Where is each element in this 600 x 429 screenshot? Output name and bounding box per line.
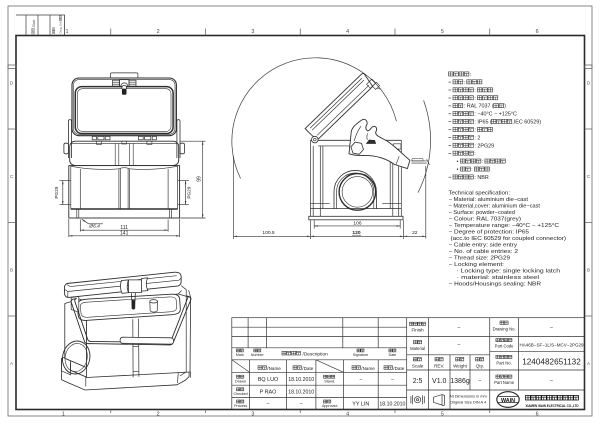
svg-text:: IP65 (: : IP65 ( [474, 120, 492, 126]
svg-text:: RAL 7037 (: : RAL 7037 ( [464, 104, 494, 110]
svg-text:PG29: PG29 [187, 186, 192, 198]
svg-text:−: − [457, 342, 460, 348]
svg-text:/Date: /Date [302, 366, 313, 371]
svg-text:/Date: /Date [32, 19, 36, 27]
svg-text:All Dimensions in mm: All Dimensions in mm [449, 394, 486, 399]
svg-text:2: 2 [157, 412, 160, 418]
svg-text:Weight: Weight [453, 363, 467, 368]
svg-text:−: − [550, 325, 553, 331]
svg-text:− Thread size: 2PG29: − Thread size: 2PG29 [449, 256, 511, 262]
svg-text:− Material: aluminium die−c: − Material: aluminium die−cast [449, 197, 529, 203]
svg-text:BQ LUO: BQ LUO [258, 377, 278, 383]
svg-text:Dwg. Dd: Dwg. Dd [59, 22, 63, 34]
svg-text:3: 3 [251, 412, 254, 418]
svg-text:106: 106 [353, 220, 361, 226]
svg-text:Number: Number [251, 353, 265, 357]
svg-text:−: − [457, 325, 460, 331]
svg-text::: : [474, 127, 475, 133]
svg-text:18.10.2010: 18.10.2010 [288, 377, 314, 383]
svg-text:2: 2 [157, 29, 160, 35]
svg-text:− Hoods/Housings sealing: N: − Hoods/Housings sealing: NBR [449, 282, 542, 288]
svg-text:Signature: Signature [353, 353, 368, 357]
svg-text:1: 1 [62, 412, 65, 418]
svg-text:4: 4 [346, 29, 349, 35]
svg-text:− Temperature range: −40°C: − Temperature range: −40°C − +125°C [449, 223, 560, 229]
svg-text::: : [474, 96, 475, 102]
svg-text:5: 5 [441, 412, 444, 418]
svg-text:Finish: Finish [411, 328, 424, 333]
svg-text:Part Code: Part Code [495, 344, 515, 349]
svg-text:2:5: 2:5 [413, 378, 423, 385]
svg-text::: : [482, 159, 483, 165]
svg-text:6: 6 [536, 29, 539, 35]
svg-text::: : [470, 72, 471, 78]
svg-text:−: − [300, 402, 303, 408]
svg-text:XIAMEN WAIN ELECTRICAL CO.,LTD: XIAMEN WAIN ELECTRICAL CO.,LTD [526, 404, 579, 408]
svg-text:18.10.2010: 18.10.2010 [379, 402, 405, 408]
svg-text:YY LIN: YY LIN [352, 402, 369, 408]
svg-text:WAIN: WAIN [501, 398, 515, 404]
svg-text::: : [464, 80, 465, 86]
svg-text:: NBR: : NBR [474, 175, 488, 181]
svg-text:Stand.: Stand. [324, 379, 335, 383]
svg-text:· Locking type: single loc: · Locking type: single locking latch [457, 269, 561, 275]
svg-text:PG29: PG29 [54, 186, 59, 198]
svg-text:B: B [10, 267, 13, 272]
svg-text:1240482651132: 1240482651132 [522, 357, 581, 366]
svg-text:· material: stainless steel: · material: stainless steel [457, 275, 540, 281]
svg-text:Drawing No.: Drawing No. [493, 327, 516, 332]
svg-text:Approved: Approved [322, 404, 337, 408]
svg-text:6: 6 [536, 412, 539, 418]
svg-text:): ) [504, 104, 506, 110]
svg-text:−: − [359, 377, 362, 383]
svg-text:Process: Process [234, 404, 247, 408]
svg-text:−: − [550, 379, 553, 385]
svg-text:Technical specification:: Technical specification: [449, 191, 511, 197]
svg-text:P RAO: P RAO [260, 389, 277, 395]
svg-text:− Cable entry: side entry: − Cable entry: side entry [449, 243, 518, 249]
svg-text:: 2PG29: : 2PG29 [474, 143, 494, 149]
svg-text:/Description: /Description [303, 352, 329, 358]
svg-text:Material: Material [410, 346, 425, 351]
svg-text:REV.: REV. [434, 363, 444, 368]
svg-text:Drawn: Drawn [235, 379, 246, 383]
svg-text:Date: Date [389, 353, 397, 357]
svg-text:,IEC 60529): ,IEC 60529) [512, 120, 541, 126]
svg-text::: : [474, 88, 475, 94]
svg-text:− Surface: powder−coated: − Surface: powder−coated [449, 210, 516, 216]
svg-text:22: 22 [412, 230, 418, 236]
svg-text:B: B [587, 267, 590, 272]
svg-text:Part No.: Part No. [496, 360, 511, 365]
svg-text:Ø6.4: Ø6.4 [88, 223, 100, 229]
svg-text:141: 141 [120, 230, 129, 236]
svg-text::: : [471, 167, 472, 173]
svg-text:100.5: 100.5 [262, 230, 275, 236]
svg-text:V1.0: V1.0 [432, 378, 447, 385]
svg-text:− Locking element:: − Locking element: [449, 262, 505, 268]
svg-text:4: 4 [346, 412, 349, 418]
svg-text:1: 1 [66, 29, 69, 35]
svg-text:−: − [478, 378, 481, 384]
svg-text:99: 99 [197, 176, 203, 182]
svg-text:Mark: Mark [236, 353, 244, 357]
svg-text:Scale: Scale [412, 363, 424, 368]
svg-text:1386g: 1386g [450, 378, 470, 385]
svg-text:−: − [266, 402, 269, 408]
svg-text:Part Name: Part Name [494, 380, 515, 385]
svg-text:Original Size DIN A 4: Original Size DIN A 4 [450, 400, 487, 405]
svg-text:− Colour: RAL 7037(grey): − Colour: RAL 7037(grey) [449, 217, 522, 223]
svg-text:Checked: Checked [234, 392, 248, 396]
svg-text:/Name: /Name [267, 366, 281, 371]
svg-text:− Material,cover: aluminium: − Material,cover: aluminium die−cast [449, 204, 541, 210]
svg-text:−: − [391, 377, 394, 383]
svg-text:18.10.2010: 18.10.2010 [288, 389, 314, 395]
svg-text:(acc.to IEC 60529 for coup: (acc.to IEC 60529 for coupled connector) [451, 236, 567, 242]
svg-text:− No. of cable entries: 2: − No. of cable entries: 2 [449, 249, 519, 255]
svg-text:/Name: /Name [361, 366, 375, 371]
svg-text:3: 3 [251, 29, 254, 35]
svg-text:/Date: /Date [393, 366, 404, 371]
svg-text:Qty.: Qty. [476, 363, 484, 368]
svg-text:HA46B−SF−1L/S−MCV−2PG29: HA46B−SF−1L/S−MCV−2PG29 [520, 343, 585, 348]
svg-text:5: 5 [441, 29, 444, 35]
svg-text:: −40°C − +125°C: : −40°C − +125°C [474, 112, 517, 118]
svg-text:: 2: : 2 [474, 135, 480, 141]
svg-text:− Degree of protection: IP: − Degree of protection: IP65 [449, 230, 530, 236]
svg-text::: : [474, 151, 475, 157]
